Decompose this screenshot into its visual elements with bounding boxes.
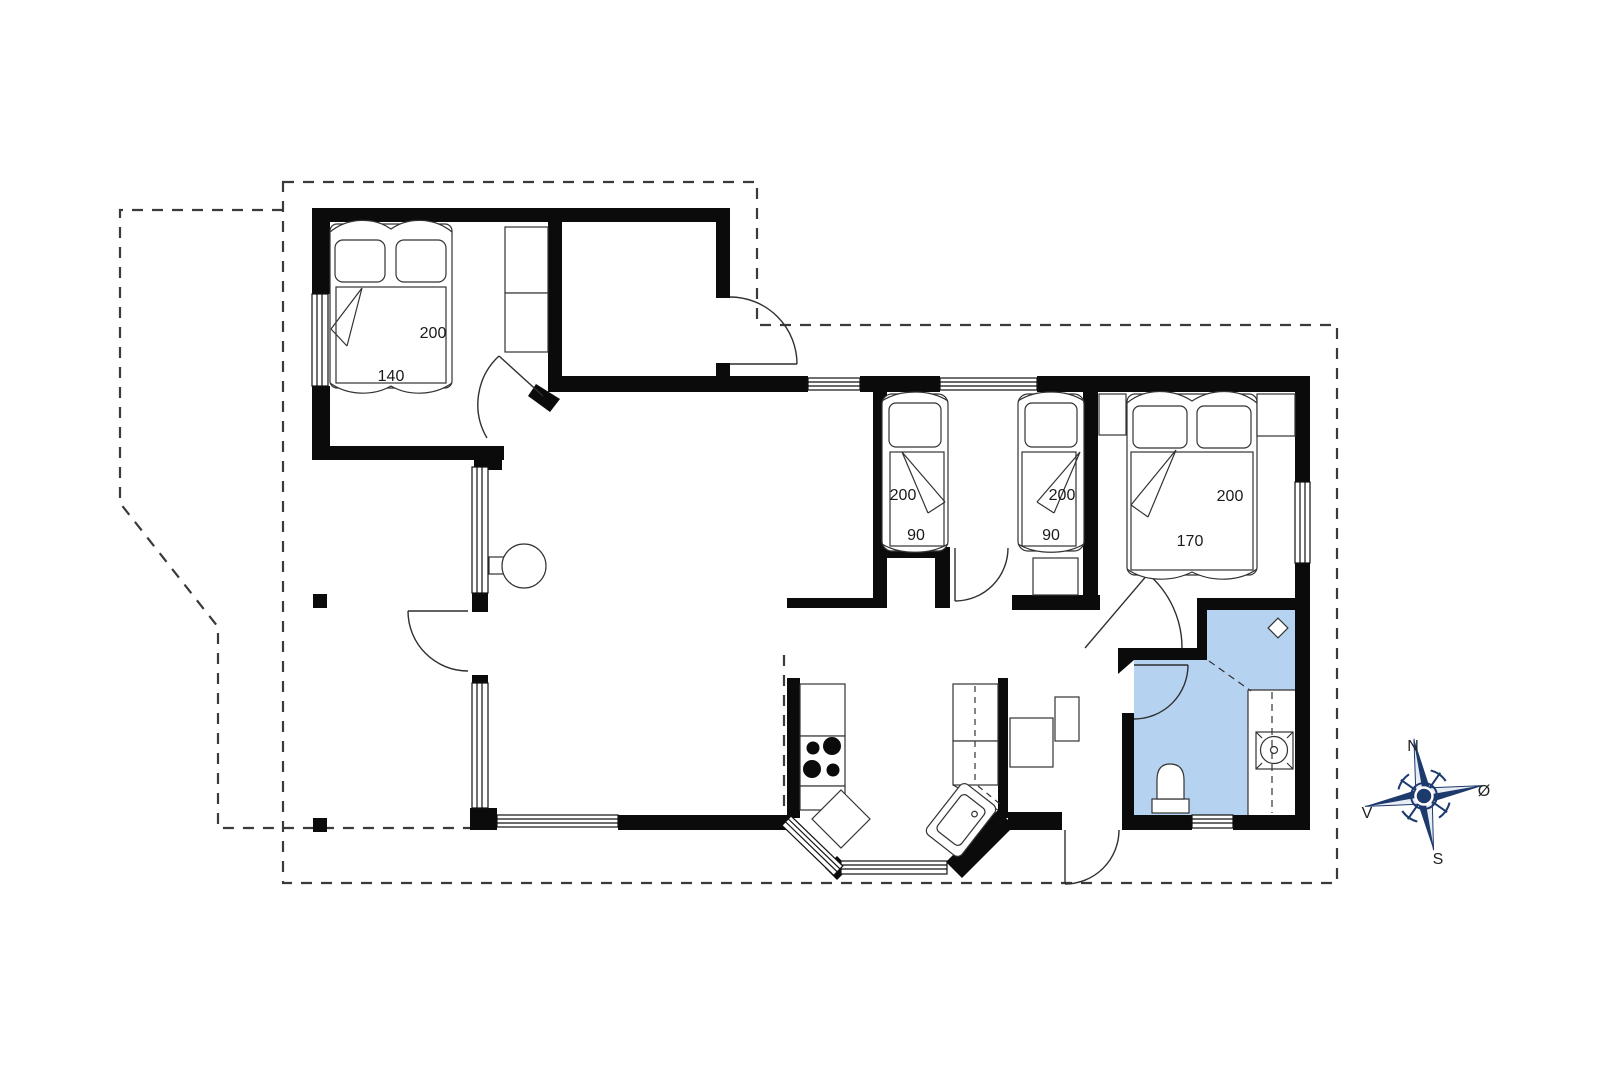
window-living-west-upper — [472, 467, 488, 593]
door-room2 — [730, 297, 797, 364]
door-terrace — [408, 611, 468, 671]
door-bedroom3 — [1085, 574, 1182, 648]
double-bed — [1127, 391, 1257, 579]
nightstand-right — [1257, 394, 1295, 436]
master-bed-width: 140 — [378, 368, 405, 385]
window-livingroom-north — [808, 378, 860, 390]
door-twinroom — [955, 548, 1008, 601]
compass-label-west: V — [1362, 805, 1373, 822]
floor-plan-page: N V Ø S 200 140 200 90 200 90 200 170 — [0, 0, 1600, 1066]
compass-rose: N V Ø S — [1355, 728, 1493, 868]
washbasin — [1256, 732, 1293, 769]
wardrobe-twinroom — [1033, 558, 1078, 595]
window-bath-south — [1192, 815, 1233, 828]
double-bed-width: 170 — [1177, 533, 1204, 550]
compass-label-east: Ø — [1478, 783, 1490, 800]
window-living-west-lower — [472, 683, 488, 808]
single-right-width: 90 — [1042, 527, 1060, 544]
compass-label-south: S — [1433, 851, 1444, 868]
dimension-labels: 200 140 200 90 200 90 200 170 — [378, 325, 1244, 550]
master-bed-length: 200 — [420, 325, 447, 342]
window-bedroom1-west — [312, 294, 328, 386]
window-twinroom-north — [940, 378, 1037, 390]
wood-stove — [489, 544, 546, 588]
single-left-width: 90 — [907, 527, 925, 544]
window-bay-south — [841, 861, 947, 874]
window-bedroom3-east — [1295, 482, 1310, 563]
wardrobe-bedroom1 — [505, 227, 548, 352]
floor-plan-drawing: N V Ø S 200 140 200 90 200 90 200 170 — [0, 0, 1600, 1066]
door-entry — [1065, 830, 1119, 884]
single-right-length: 200 — [1049, 487, 1076, 504]
compass-label-north: N — [1407, 738, 1419, 755]
hall-cabinets — [1010, 697, 1079, 767]
single-left-length: 200 — [890, 487, 917, 504]
window-living-south — [497, 815, 618, 827]
nightstand-left — [1099, 394, 1126, 435]
double-bed-length: 200 — [1217, 488, 1244, 505]
